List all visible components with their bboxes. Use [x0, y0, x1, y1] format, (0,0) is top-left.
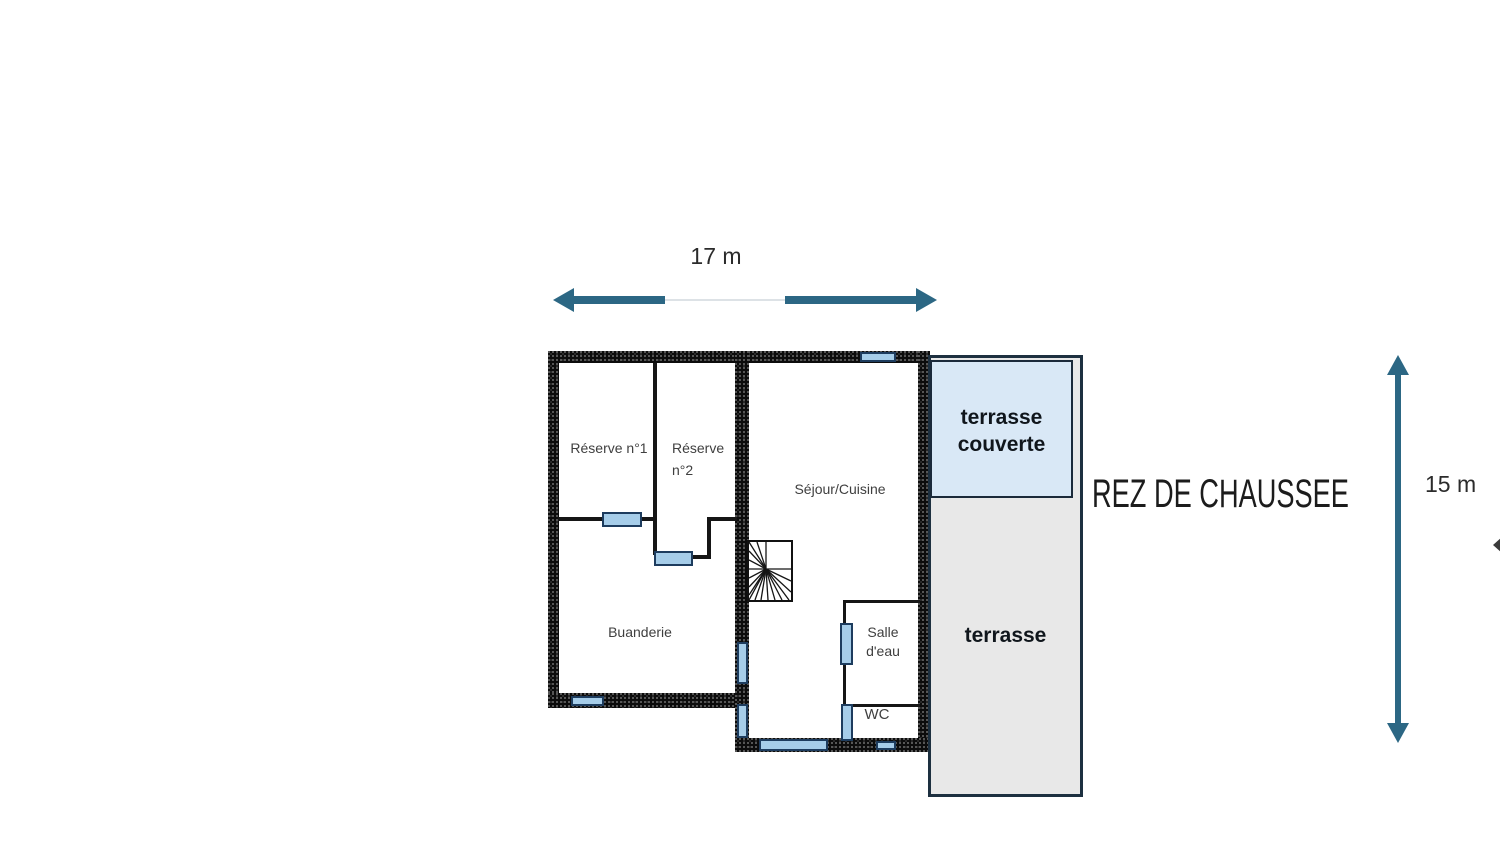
horizontal-arrow-shaft-left	[572, 296, 665, 304]
partition-reserve2-step-horizontal	[707, 517, 737, 521]
horizontal-dimension-label: 17 m	[690, 243, 741, 270]
partition-reserve1-bottom-b	[640, 517, 655, 521]
spiral-stairs-icon	[747, 540, 793, 602]
partition-reserve2-step-vertical	[707, 517, 711, 559]
room-label-reserve2: Réserve n°2	[672, 437, 724, 481]
window-sejour-left-lower	[737, 704, 748, 738]
terrasse-couverte-label-line1: terrasse	[961, 406, 1043, 429]
cropped-edge-fragment	[1493, 536, 1500, 554]
partition-reserve1-reserve2	[653, 363, 657, 555]
window-top-wall	[860, 352, 896, 362]
window-sejour-bottom-long	[759, 739, 828, 751]
room-label-salle-deau-line1: Salle	[867, 624, 898, 640]
door-reserve1	[602, 512, 642, 527]
room-label-reserve2-line1: Réserve	[672, 440, 724, 456]
horizontal-arrow-thin-line	[665, 299, 785, 301]
door-reserve2	[654, 551, 693, 566]
room-label-reserve2-line2: n°2	[672, 462, 693, 478]
horizontal-arrowhead-right-icon	[916, 288, 937, 312]
horizontal-arrowhead-left-icon	[553, 288, 574, 312]
vertical-arrowhead-bottom-icon	[1387, 723, 1409, 743]
door-wc	[841, 704, 853, 741]
room-label-salle-deau-line2: d'eau	[866, 643, 900, 659]
partition-salle-deau-top	[843, 600, 920, 603]
room-label-salle-deau: Salle d'eau	[866, 623, 900, 661]
vertical-dimension-label: 15 m	[1425, 471, 1476, 498]
door-salle-deau	[840, 623, 853, 665]
terrasse-couverte-label: terrasse couverte	[930, 404, 1073, 458]
horizontal-arrow-shaft-right	[785, 296, 917, 304]
wall-left	[548, 351, 559, 708]
room-label-wc: WC	[865, 706, 890, 725]
room-label-sejour-cuisine: Séjour/Cuisine	[794, 481, 885, 499]
room-label-reserve1: Réserve n°1	[570, 440, 647, 458]
vertical-arrowhead-top-icon	[1387, 355, 1409, 375]
terrasse-label: terrasse	[928, 622, 1083, 649]
room-label-buanderie: Buanderie	[608, 624, 672, 642]
vertical-arrow-shaft	[1395, 373, 1401, 725]
window-wc-bottom-short	[876, 741, 896, 750]
window-buanderie-bottom	[571, 696, 604, 706]
terrasse-couverte-label-line2: couverte	[958, 433, 1046, 456]
floor-title: REZ DE CHAUSSEE	[1092, 474, 1349, 514]
floor-plan-canvas: terrasse couverte terrasse Réserve n°1 R…	[0, 0, 1500, 844]
partition-reserve1-bottom-a	[558, 517, 605, 521]
window-sejour-left-upper	[737, 642, 748, 684]
